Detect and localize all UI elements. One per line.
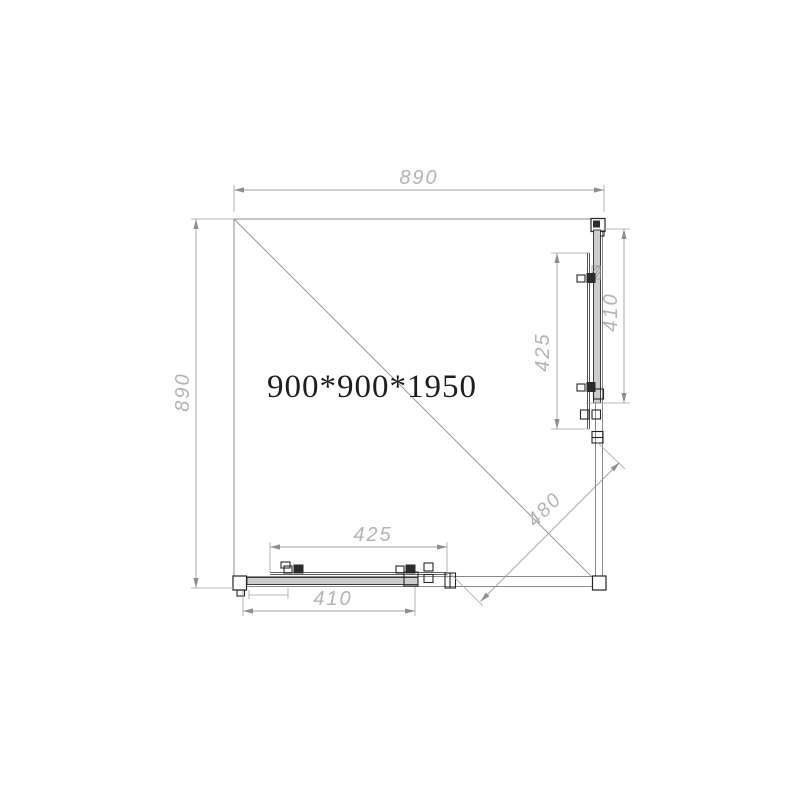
bottom-door-end-cap [445, 573, 456, 588]
right-sliding-door-assembly [577, 230, 604, 443]
dim-right-door-panel-label: 410 [600, 292, 622, 331]
drawing-page: 890 890 425 410 425 410 48 [0, 0, 800, 800]
shower-enclosure-plan-drawing: 890 890 425 410 425 410 48 [0, 0, 800, 800]
right-door-handle [581, 410, 601, 419]
dimension-right-fixed-panel: 425 [532, 253, 590, 429]
right-door-end-cap [592, 432, 603, 444]
dim-top-width-label: 890 [399, 167, 438, 189]
model-size-label: 900*900*1950 [267, 369, 477, 405]
corner-bracket-bottom-right [593, 576, 607, 590]
right-door-roller-top [577, 273, 596, 283]
bottom-door-glass [247, 578, 418, 585]
dimension-left-height: 890 [172, 219, 234, 588]
dim-right-fixed-panel-label: 425 [532, 332, 554, 371]
dim-corner-opening-label: 480 [523, 488, 566, 531]
dim-left-height-label: 890 [172, 372, 194, 411]
bottom-door-mini-dimension [249, 588, 288, 599]
bottom-door-roller-left [281, 562, 304, 574]
corner-bracket-bottom-left [233, 576, 247, 596]
dimension-top-width: 890 [234, 167, 604, 212]
dim-bottom-fixed-panel-label: 425 [353, 524, 392, 546]
dim-bottom-door-panel-label: 410 [313, 588, 352, 610]
dimension-bottom-door-panel: 410 [243, 587, 415, 616]
